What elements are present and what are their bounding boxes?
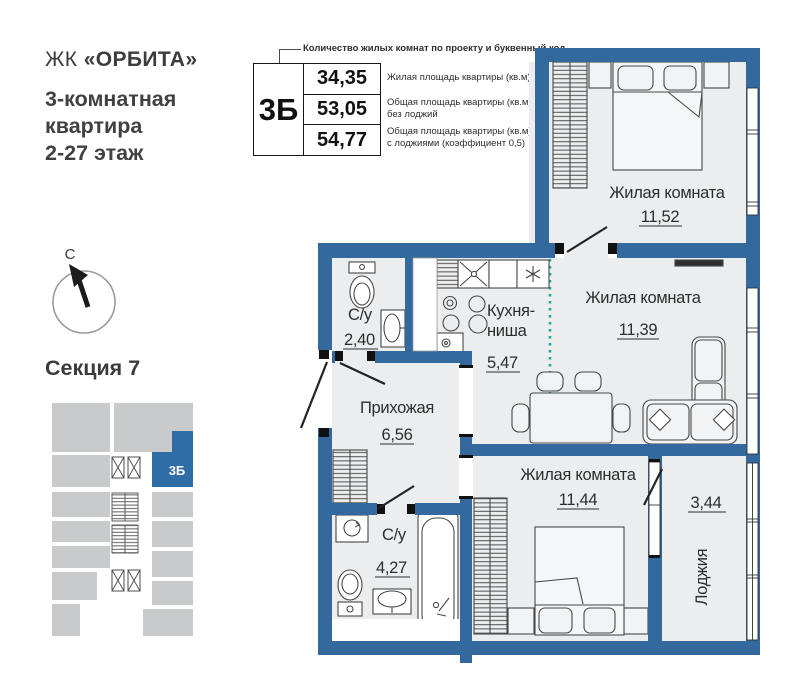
kitchen-counter bbox=[489, 260, 517, 288]
floor-plan: Жилая комната 11,52 Жилая комната 11,39 … bbox=[293, 22, 767, 667]
loggia-name: Лоджия bbox=[693, 549, 711, 606]
tv bbox=[675, 260, 723, 266]
loggia-area: 3,44 bbox=[691, 494, 722, 512]
minimap-stairs bbox=[112, 493, 138, 553]
bath2-name: С/у bbox=[382, 526, 407, 544]
wardrobe bbox=[553, 62, 587, 188]
brand-name: «ОРБИТА» bbox=[84, 48, 198, 71]
north-label: С bbox=[65, 246, 76, 263]
compass: С bbox=[45, 243, 127, 343]
washbasin bbox=[373, 589, 411, 614]
kitchen-name-line2: ниша bbox=[487, 322, 528, 340]
living1-name: Жилая комната bbox=[609, 184, 725, 202]
toilet bbox=[349, 262, 375, 308]
living2-area: 11,39 bbox=[619, 321, 658, 339]
toilet bbox=[338, 570, 362, 616]
hall-wardrobe bbox=[333, 450, 367, 503]
bath2-area: 4,27 bbox=[376, 559, 407, 577]
bath1-area: 2,40 bbox=[344, 331, 375, 349]
title-line-1: 3-комнатная bbox=[45, 86, 176, 113]
living3-name: Жилая комната bbox=[520, 466, 636, 484]
section-minimap: 3Б bbox=[40, 398, 205, 650]
kitchen-name-line1: Кухня- bbox=[487, 302, 535, 320]
hall-area: 6,56 bbox=[382, 426, 413, 444]
bath1-name: С/у bbox=[348, 306, 373, 324]
living3-area: 11,44 bbox=[559, 491, 598, 509]
dining-table bbox=[530, 393, 612, 443]
kitchen-sink bbox=[458, 260, 489, 288]
bathtub bbox=[418, 513, 458, 635]
minimap-elevators bbox=[112, 457, 140, 591]
double-bed bbox=[613, 62, 702, 170]
title-line-2: квартира bbox=[45, 113, 176, 140]
kitchen-dish-rack bbox=[437, 260, 458, 288]
ventilation-shaft bbox=[413, 258, 437, 351]
living2-name: Жилая комната bbox=[585, 289, 701, 307]
section-title: Секция 7 bbox=[45, 356, 140, 381]
brand-prefix: ЖК bbox=[45, 48, 77, 71]
double-bed bbox=[535, 527, 624, 635]
fridge bbox=[517, 260, 549, 288]
minimap-flat-code: 3Б bbox=[169, 463, 186, 478]
washing-machine bbox=[336, 515, 368, 542]
page-title: 3-комнатная квартира 2-27 этаж bbox=[45, 86, 176, 167]
wardrobe bbox=[474, 498, 507, 634]
hall-name: Прихожая bbox=[360, 399, 434, 417]
brand: ЖК «ОРБИТА» bbox=[45, 48, 197, 72]
flat-plan-page: ЖК «ОРБИТА» 3-комнатная квартира 2-27 эт… bbox=[0, 0, 800, 689]
kitchen-cabinet bbox=[437, 333, 463, 353]
living1-area: 11,52 bbox=[641, 208, 680, 226]
title-line-3: 2-27 этаж bbox=[45, 140, 176, 167]
washbasin bbox=[381, 310, 405, 347]
wall-niche bbox=[332, 619, 460, 641]
kitchen-area: 5,47 bbox=[487, 354, 518, 372]
